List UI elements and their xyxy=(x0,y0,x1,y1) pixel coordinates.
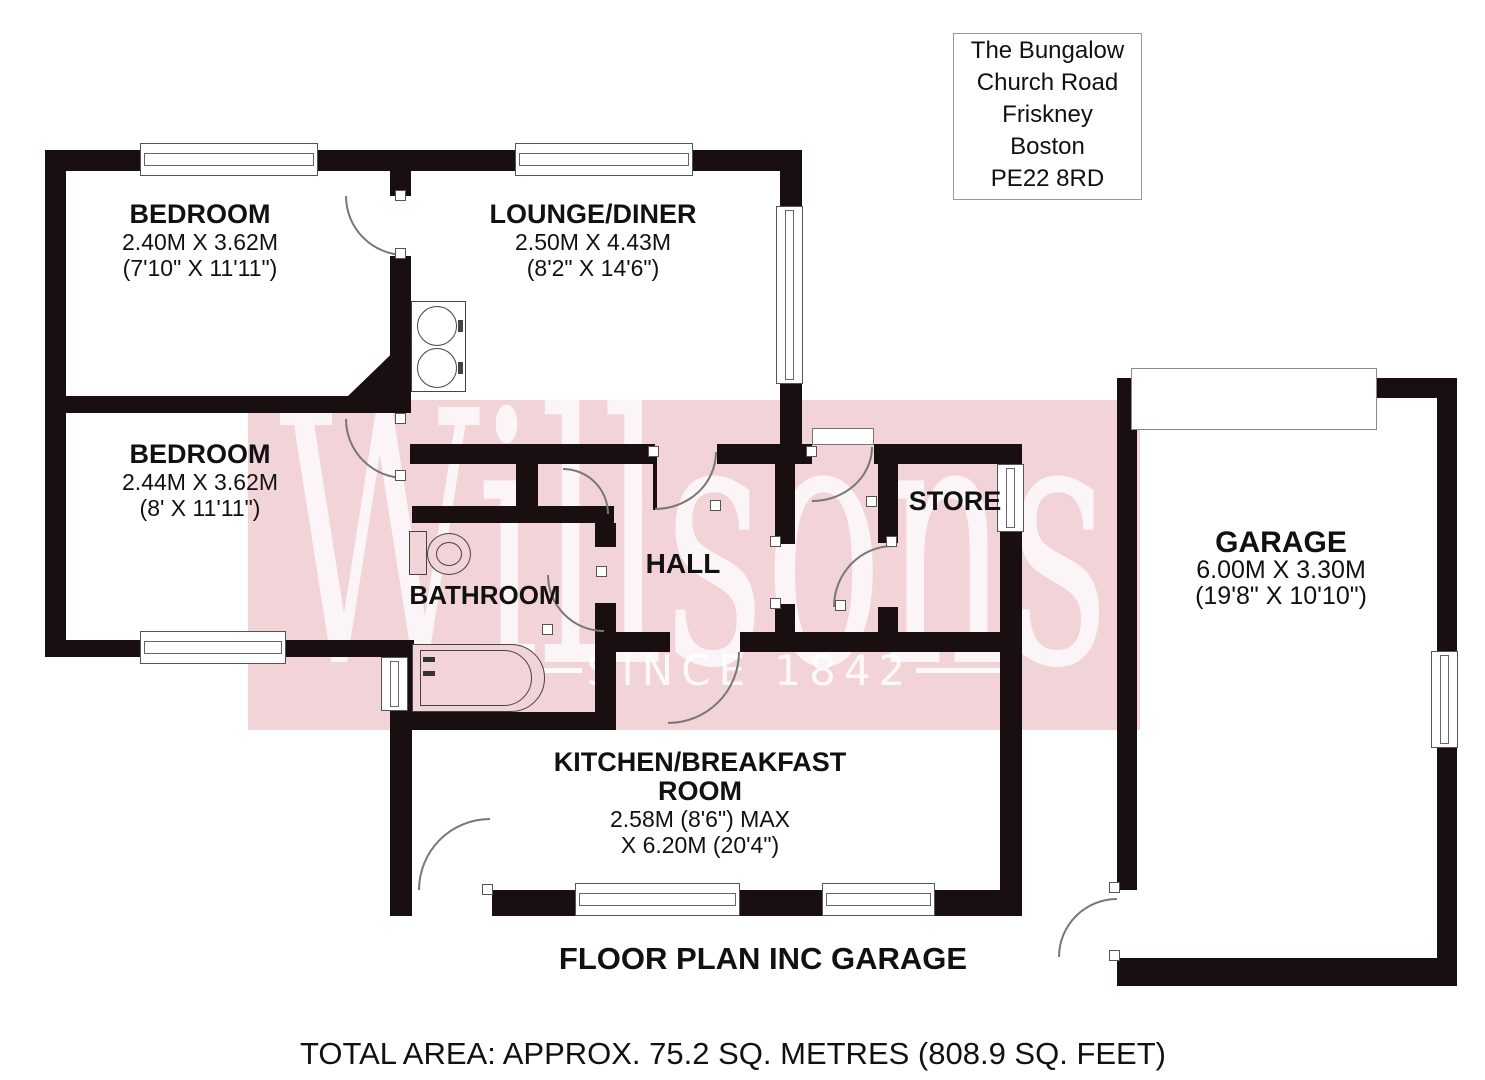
room-name: HALL xyxy=(646,549,721,578)
address-line: Friskney xyxy=(954,99,1141,131)
room-dim-metric: 2.44M X 3.62M xyxy=(122,469,278,495)
room-dim-metric: 2.40M X 3.62M xyxy=(122,229,278,255)
door-hinge xyxy=(542,624,553,635)
room-name: BATHROOM xyxy=(409,581,560,610)
wall xyxy=(780,150,802,208)
wall xyxy=(878,607,898,652)
plan-title: FLOOR PLAN INC GARAGE xyxy=(559,941,967,977)
door-hinge xyxy=(806,446,817,457)
window xyxy=(575,883,740,916)
room-dim-metric: 2.50M X 4.43M xyxy=(489,229,696,255)
door-arc xyxy=(1058,898,1117,957)
window xyxy=(140,631,286,664)
door-hinge xyxy=(648,446,659,457)
room-label-kitchen: KITCHEN/BREAKFAST ROOM 2.58M (8'6") MAX … xyxy=(554,748,847,858)
garage-wall xyxy=(1117,378,1137,890)
door-hinge xyxy=(710,500,721,511)
stove xyxy=(411,301,466,392)
wall xyxy=(595,523,616,547)
door-hinge xyxy=(770,598,781,609)
wall xyxy=(775,604,795,652)
door-hinge xyxy=(596,566,607,577)
floor-plan: Willsons SINCE 1842 xyxy=(0,0,1485,1080)
window xyxy=(515,143,693,176)
total-area: TOTAL AREA: APPROX. 75.2 SQ. METRES (808… xyxy=(300,1036,1166,1072)
door-hinge xyxy=(482,884,493,895)
room-label-bedroom1: BEDROOM 2.40M X 3.62M (7'10" X 11'11") xyxy=(122,200,278,281)
room-name: LOUNGE/DINER xyxy=(489,200,696,229)
door-leaf xyxy=(812,428,874,445)
room-name: GARAGE xyxy=(1195,528,1367,557)
wall xyxy=(780,382,802,444)
room-label-bedroom2: BEDROOM 2.44M X 3.62M (8' X 11'11") xyxy=(122,440,278,521)
garage-door-panel xyxy=(1131,368,1377,430)
window xyxy=(776,206,803,384)
room-label-lounge: LOUNGE/DINER 2.50M X 4.43M (8'2" X 14'6"… xyxy=(489,200,696,281)
wall xyxy=(616,632,670,652)
toilet-bowl-inner xyxy=(436,542,462,566)
room-dim-imperial: (19'8" X 10'10") xyxy=(1195,583,1367,609)
door-hinge xyxy=(886,536,897,547)
door-hinge xyxy=(395,190,406,201)
wall xyxy=(878,464,898,543)
bath-tap xyxy=(423,671,435,676)
room-dim-metric: 2.58M (8'6") MAX xyxy=(554,806,847,832)
window xyxy=(822,883,935,916)
wall xyxy=(516,464,538,506)
wall xyxy=(412,712,616,730)
wall xyxy=(717,444,812,464)
stove-knob xyxy=(458,320,463,332)
window xyxy=(381,657,408,711)
room-dim-imperial: (7'10" X 11'11") xyxy=(122,255,278,281)
door-hinge xyxy=(835,600,846,611)
bathtub xyxy=(412,644,545,712)
door-arc xyxy=(345,196,405,256)
wall xyxy=(410,444,655,464)
door-hinge xyxy=(866,496,877,507)
address-line: The Bungalow xyxy=(954,35,1141,67)
room-name: KITCHEN/BREAKFAST xyxy=(554,748,847,777)
watermark-tagline: SINCE 1842 xyxy=(587,646,914,695)
wall xyxy=(45,396,411,413)
door-arc xyxy=(418,818,490,890)
door-hinge xyxy=(395,470,406,481)
room-dim-imperial: X 6.20M (20'4") xyxy=(554,832,847,858)
room-dim-imperial: (8'2" X 14'6") xyxy=(489,255,696,281)
bath-tap xyxy=(423,657,435,662)
window xyxy=(140,143,318,176)
room-name: BEDROOM xyxy=(122,440,278,469)
wall xyxy=(492,890,1022,916)
toilet-cistern xyxy=(409,531,427,575)
room-label-hall: HALL xyxy=(646,549,721,578)
address-box: The Bungalow Church Road Friskney Boston… xyxy=(953,33,1142,200)
room-label-garage: GARAGE 6.00M X 3.30M (19'8" X 10'10") xyxy=(1195,528,1367,609)
stove-burner xyxy=(417,306,457,346)
wall xyxy=(775,464,795,544)
address-line: PE22 8RD xyxy=(954,163,1141,195)
room-name: ROOM xyxy=(554,777,847,806)
address-line: Church Road xyxy=(954,67,1141,99)
window xyxy=(1431,651,1458,748)
stove-knob xyxy=(458,362,463,374)
door-hinge xyxy=(395,413,406,424)
room-name: BEDROOM xyxy=(122,200,278,229)
door-hinge xyxy=(1109,882,1120,893)
room-dim-imperial: (8' X 11'11") xyxy=(122,495,278,521)
garage-wall xyxy=(1117,958,1457,986)
address-line: Boston xyxy=(954,131,1141,163)
stove-burner xyxy=(417,348,457,388)
toilet-bowl xyxy=(427,533,471,575)
door-hinge xyxy=(770,536,781,547)
door-hinge xyxy=(395,248,406,259)
door-hinge xyxy=(1109,950,1120,961)
room-name: STORE xyxy=(909,487,1002,516)
bathtub-inner xyxy=(420,650,532,706)
room-dim-metric: 6.00M X 3.30M xyxy=(1195,557,1367,583)
room-label-bathroom: BATHROOM xyxy=(409,581,560,610)
room-label-store: STORE xyxy=(909,487,1002,516)
